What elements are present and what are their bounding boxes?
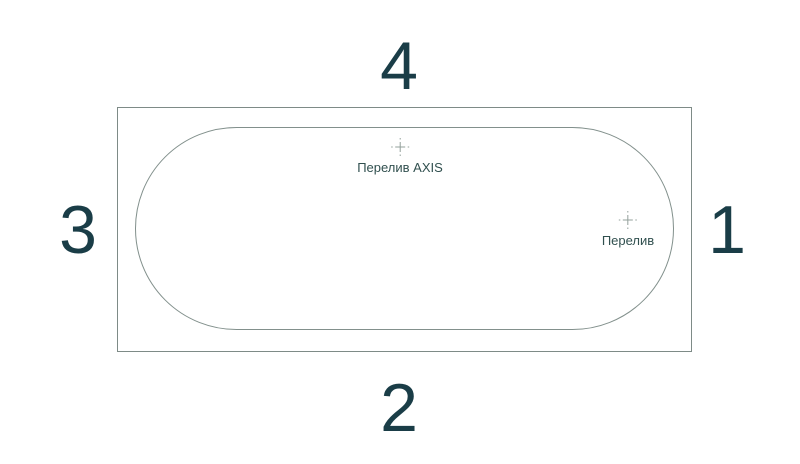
side-label-right: 1: [708, 196, 746, 264]
side-label-left: 3: [59, 196, 97, 264]
overflow-axis-marker: Перелив AXIS: [357, 136, 443, 176]
side-label-bottom: 2: [380, 374, 418, 442]
overflow-axis-label: Перелив AXIS: [357, 160, 443, 176]
crosshair-icon: [617, 209, 639, 231]
crosshair-icon: [389, 136, 411, 158]
bathtub-top-view-diagram: 4 1 2 3 Перелив AXIS Перелив: [0, 0, 800, 464]
overflow-marker: Перелив: [602, 209, 654, 249]
overflow-label: Перелив: [602, 233, 654, 249]
side-label-top: 4: [380, 32, 418, 100]
